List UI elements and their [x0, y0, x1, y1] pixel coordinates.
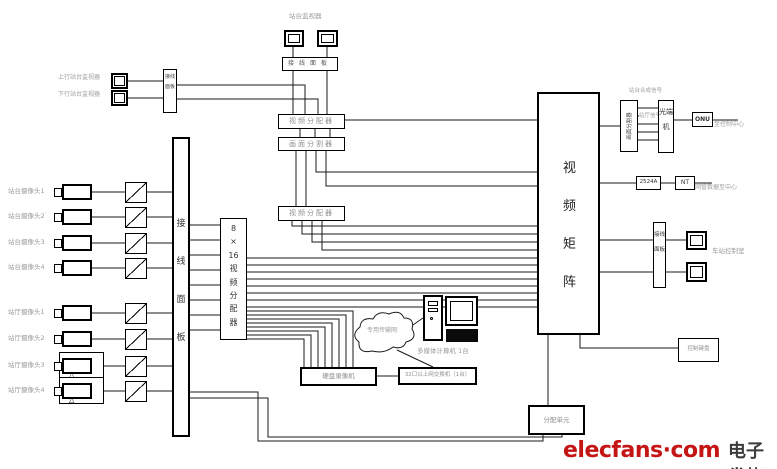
camera-icon	[62, 305, 92, 321]
pc-tower-drive	[428, 301, 438, 306]
camera-label: 站台摄像头2	[8, 213, 45, 220]
pc-tower-icon	[423, 295, 443, 341]
monitor-screen	[690, 235, 703, 246]
nt-box: NT	[675, 176, 695, 190]
monitor-icon	[111, 90, 128, 106]
pc-monitor-screen	[450, 301, 473, 321]
pan-tilt-mount-icon: △	[69, 397, 74, 404]
monitor-icon	[111, 73, 128, 89]
camera-icon	[62, 358, 92, 374]
logo-cn: 电子发烧友	[728, 437, 777, 469]
monitor-screen	[114, 76, 125, 86]
pc-tower-drive	[428, 308, 438, 312]
monitor-icon	[686, 231, 707, 250]
monitor-icon	[317, 30, 338, 47]
camera-icon	[62, 260, 92, 276]
monitor-icon	[686, 262, 707, 282]
distribution-unit-box: 分配单元	[528, 405, 585, 435]
surge-protector-icon	[125, 381, 147, 402]
camera-lens-icon	[54, 213, 62, 222]
screen-splitter: 画面分割器	[278, 137, 345, 151]
computer-label: 多媒体计算机 1台	[417, 348, 469, 355]
pc-keyboard-icon	[446, 329, 478, 342]
camera-icon	[62, 184, 92, 200]
surge-protector-icon	[125, 207, 147, 228]
cloud-label: 专用传输网	[367, 328, 397, 335]
camera-label: 站厅摄像头2	[8, 335, 45, 342]
pc-tower-button	[430, 317, 433, 320]
pc-monitor-icon	[445, 296, 478, 326]
top-monitors-label: 站台监视器	[289, 13, 322, 20]
left-wiring-panel: 接线面板	[163, 69, 177, 113]
video-distributor-mid: 视频分配器	[278, 206, 345, 221]
camera-label: 站台摄像头1	[8, 188, 45, 195]
camera-icon	[62, 383, 92, 399]
camera-label: 站厅摄像头1	[8, 309, 45, 316]
onu-box: ONU	[692, 112, 713, 127]
camera-label: 站台摄像头4	[8, 264, 45, 271]
camera-lens-icon	[54, 239, 62, 248]
control-room-label: 车站控制室	[712, 248, 745, 255]
monitor-icon	[284, 30, 304, 47]
surge-protector-icon	[125, 329, 147, 350]
down-monitor-label: 下行站台监视器	[58, 92, 100, 99]
video-distributor-top: 视频分配器	[278, 114, 345, 129]
camera-label: 站台摄像头3	[8, 239, 45, 246]
surge-protector-icon	[125, 182, 147, 203]
modem-box: 2524A	[636, 176, 661, 190]
surge-protector-icon	[125, 233, 147, 254]
control-room-panel: 接线面板	[653, 222, 666, 288]
platform-signal-label: 站台合成信号	[629, 88, 662, 94]
monitor-screen	[321, 34, 334, 43]
camera-lens-icon	[54, 264, 62, 273]
8x16-video-distributor: 8×16视频分配器	[220, 218, 247, 340]
elecfans-logo: elecfans·com 电子发烧友	[563, 437, 777, 469]
monitor-screen	[690, 266, 703, 278]
camera-icon	[62, 235, 92, 251]
surge-protector-icon	[125, 303, 147, 324]
logo-en: elecfans·com	[563, 438, 720, 463]
up-monitor-label: 上行站台监视器	[58, 75, 100, 82]
top-wiring-panel: 接线面板	[282, 57, 338, 71]
surge-protector-icon	[125, 356, 147, 377]
monitor-screen	[288, 34, 300, 43]
net-data-label: 网管数据至中心	[695, 185, 737, 192]
monitor-screen	[114, 93, 125, 103]
camera-icon	[62, 331, 92, 347]
camera-lens-icon	[54, 387, 62, 396]
camera-lens-icon	[54, 362, 62, 371]
camera-lens-icon	[54, 309, 62, 318]
dvr-box: 硬盘录像机	[300, 367, 377, 386]
uplink-splitter: 画面分割器	[620, 100, 638, 152]
to-control-center-label: 至控制中心	[714, 122, 744, 129]
optical-transceiver: 光端机	[658, 100, 674, 153]
camera-lens-icon	[54, 335, 62, 344]
camera-icon	[62, 209, 92, 225]
video-matrix: 视频矩阵	[537, 92, 600, 335]
main-wiring-panel: 接线面板	[172, 137, 190, 437]
control-keyboard-box: 控制键盘	[678, 338, 719, 362]
lan-switch-box: 32口以上网交换机（1台）	[398, 367, 477, 385]
system-diagram: 站台监视器 接线面板 上行站台监视器 下行站台监视器 接线面板 视频分配器 画面…	[0, 0, 777, 469]
camera-label: 站厅摄像头3	[8, 362, 45, 369]
camera-lens-icon	[54, 188, 62, 197]
camera-label: 站厅摄像头4	[8, 387, 45, 394]
surge-protector-icon	[125, 258, 147, 279]
uplink-splitter-label: 画面分割器	[625, 112, 633, 140]
